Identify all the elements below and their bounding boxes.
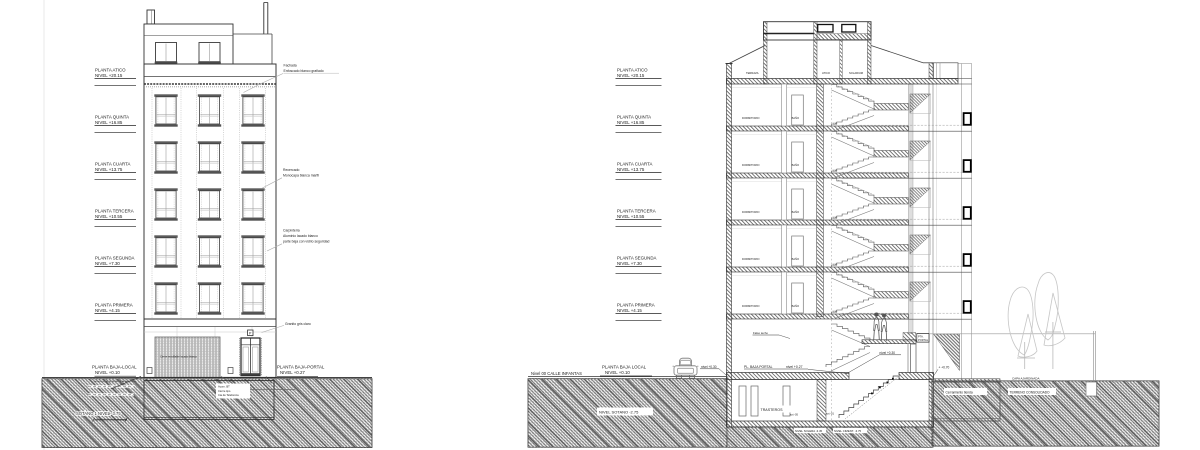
svg-text:ATICO: ATICO xyxy=(822,71,830,75)
svg-text:NIVEL +13.75: NIVEL +13.75 xyxy=(95,167,123,172)
svg-text:PLANTA TERCERA: PLANTA TERCERA xyxy=(95,209,134,214)
svg-text:DORMITORIO: DORMITORIO xyxy=(742,304,759,308)
svg-text:TERRENO CONSOLIDADO: TERRENO CONSOLIDADO xyxy=(1010,391,1051,395)
svg-text:nivel +0.30: nivel +0.30 xyxy=(701,365,717,369)
svg-text:NIVEL SOTANO -2.75: NIVEL SOTANO -2.75 xyxy=(599,410,639,415)
svg-text:Cierre tipo: Cierre tipo xyxy=(218,389,231,393)
svg-text:Monocapa blanca marfil: Monocapa blanca marfil xyxy=(283,174,319,178)
svg-text:NIVEL +20.15: NIVEL +20.15 xyxy=(617,73,645,78)
svg-text:PLANTA CUARTA: PLANTA CUARTA xyxy=(617,162,652,167)
svg-text:Aluminio lacado blanco: Aluminio lacado blanco xyxy=(283,234,318,238)
svg-text:NIVEL +16.85: NIVEL +16.85 xyxy=(617,120,645,125)
svg-text:DORMITORIO: DORMITORIO xyxy=(742,116,759,120)
svg-text:1.30: 1.30 xyxy=(833,171,838,173)
svg-text:Recercado: Recercado xyxy=(283,168,300,172)
svg-text:parte baja con vidrio segurida: parte baja con vidrio seguridad xyxy=(283,240,329,244)
svg-text:PLANTA BAJA-LOCAL: PLANTA BAJA-LOCAL xyxy=(92,365,137,370)
svg-text:NIVEL +16.85: NIVEL +16.85 xyxy=(95,120,123,125)
svg-text:NIVEL +4.15: NIVEL +4.15 xyxy=(95,308,120,313)
svg-text:NIVEL CIMENT. -3.75: NIVEL CIMENT. -3.75 xyxy=(834,429,862,433)
svg-text:PLANTA QUINTA: PLANTA QUINTA xyxy=(95,115,129,120)
svg-text:Cerramiento tienda: Cerramiento tienda xyxy=(946,391,973,395)
svg-text:NIVEL +0.10: NIVEL +0.10 xyxy=(95,370,120,375)
svg-text:+ +0.70: + +0.70 xyxy=(939,366,950,370)
svg-text:nivel +0.27: nivel +0.27 xyxy=(786,365,803,369)
svg-text:NIVEL +4.15: NIVEL +4.15 xyxy=(617,308,642,313)
svg-text:sot -05: sot -05 xyxy=(790,413,798,417)
svg-text:NIVEL +7.30: NIVEL +7.30 xyxy=(617,261,642,266)
svg-text:PL. BAJA PORTAL: PL. BAJA PORTAL xyxy=(744,365,773,369)
svg-text:Falso techo: Falso techo xyxy=(753,331,768,335)
svg-text:PLANTA ATICO: PLANTA ATICO xyxy=(617,68,648,73)
svg-text:SOTANO 1 NIVEL -3.75: SOTANO 1 NIVEL -3.75 xyxy=(76,411,121,416)
svg-text:PLANTA SEGUNDA: PLANTA SEGUNDA xyxy=(617,256,657,261)
svg-text:PTA.: PTA. xyxy=(918,334,924,338)
svg-text:NIVEL +20.15: NIVEL +20.15 xyxy=(95,73,123,78)
svg-text:PLANTA BAJA-PORTAL: PLANTA BAJA-PORTAL xyxy=(277,365,325,370)
svg-text:NIVEL +0.10: NIVEL +0.10 xyxy=(605,370,630,375)
svg-text:SOLARIUM: SOLARIUM xyxy=(849,71,864,75)
svg-text:Cierre enrollable lacado blanc: Cierre enrollable lacado blanco xyxy=(160,355,198,359)
svg-text:TRASTEROS: TRASTEROS xyxy=(761,408,784,412)
svg-text:NIVEL SOLERA -3.45: NIVEL SOLERA -3.45 xyxy=(795,429,823,433)
svg-text:Nivel 00 CALLE INFANTAS: Nivel 00 CALLE INFANTAS xyxy=(531,371,582,376)
svg-text:DORMITORIO: DORMITORIO xyxy=(742,163,759,167)
svg-text:NIVEL +0.27: NIVEL +0.27 xyxy=(280,370,305,375)
svg-text:PLANTA QUINTA: PLANTA QUINTA xyxy=(617,115,651,120)
svg-text:PLANTA BAJA LOCAL: PLANTA BAJA LOCAL xyxy=(602,365,647,370)
svg-text:sot -01: sot -01 xyxy=(826,412,834,416)
svg-text:PLANTA SEGUNDA: PLANTA SEGUNDA xyxy=(95,256,135,261)
svg-text:Enfoscado blanco grafiado: Enfoscado blanco grafiado xyxy=(284,69,324,73)
svg-text:DORMITORIO: DORMITORIO xyxy=(742,210,759,214)
svg-text:PORTAL: PORTAL xyxy=(918,338,929,342)
svg-text:Cia de Telefonica: Cia de Telefonica xyxy=(218,393,239,397)
svg-text:CAPA AJARDINADA: CAPA AJARDINADA xyxy=(1012,376,1039,380)
svg-text:NIVEL +10.55: NIVEL +10.55 xyxy=(617,214,645,219)
svg-text:Carpinteria: Carpinteria xyxy=(283,229,300,233)
svg-text:1.30: 1.30 xyxy=(833,218,838,220)
svg-text:nivel +0.30: nivel +0.30 xyxy=(880,351,896,355)
svg-text:TERRAZA: TERRAZA xyxy=(746,71,759,75)
svg-text:PLANTA TERCERA: PLANTA TERCERA xyxy=(617,209,656,214)
svg-text:NIVEL +7.30: NIVEL +7.30 xyxy=(95,261,120,266)
svg-text:Fachada: Fachada xyxy=(284,64,297,68)
svg-text:DORMITORIO: DORMITORIO xyxy=(742,257,759,261)
svg-text:Acom. BT: Acom. BT xyxy=(218,385,230,389)
svg-text:PLANTA PRIMERA: PLANTA PRIMERA xyxy=(617,303,655,308)
svg-text:PLANTA CUARTA: PLANTA CUARTA xyxy=(95,162,130,167)
svg-text:NIVEL +13.75: NIVEL +13.75 xyxy=(617,167,645,172)
svg-text:PLANTA PRIMERA: PLANTA PRIMERA xyxy=(95,303,133,308)
svg-text:PLANTA ATICO: PLANTA ATICO xyxy=(95,68,126,73)
svg-text:Granito gris claro: Granito gris claro xyxy=(285,322,311,326)
svg-text:NIVEL +10.55: NIVEL +10.55 xyxy=(95,214,123,219)
svg-text:1.30: 1.30 xyxy=(833,265,838,267)
svg-text:1.30: 1.30 xyxy=(833,312,838,314)
svg-text:1.30: 1.30 xyxy=(833,124,838,126)
